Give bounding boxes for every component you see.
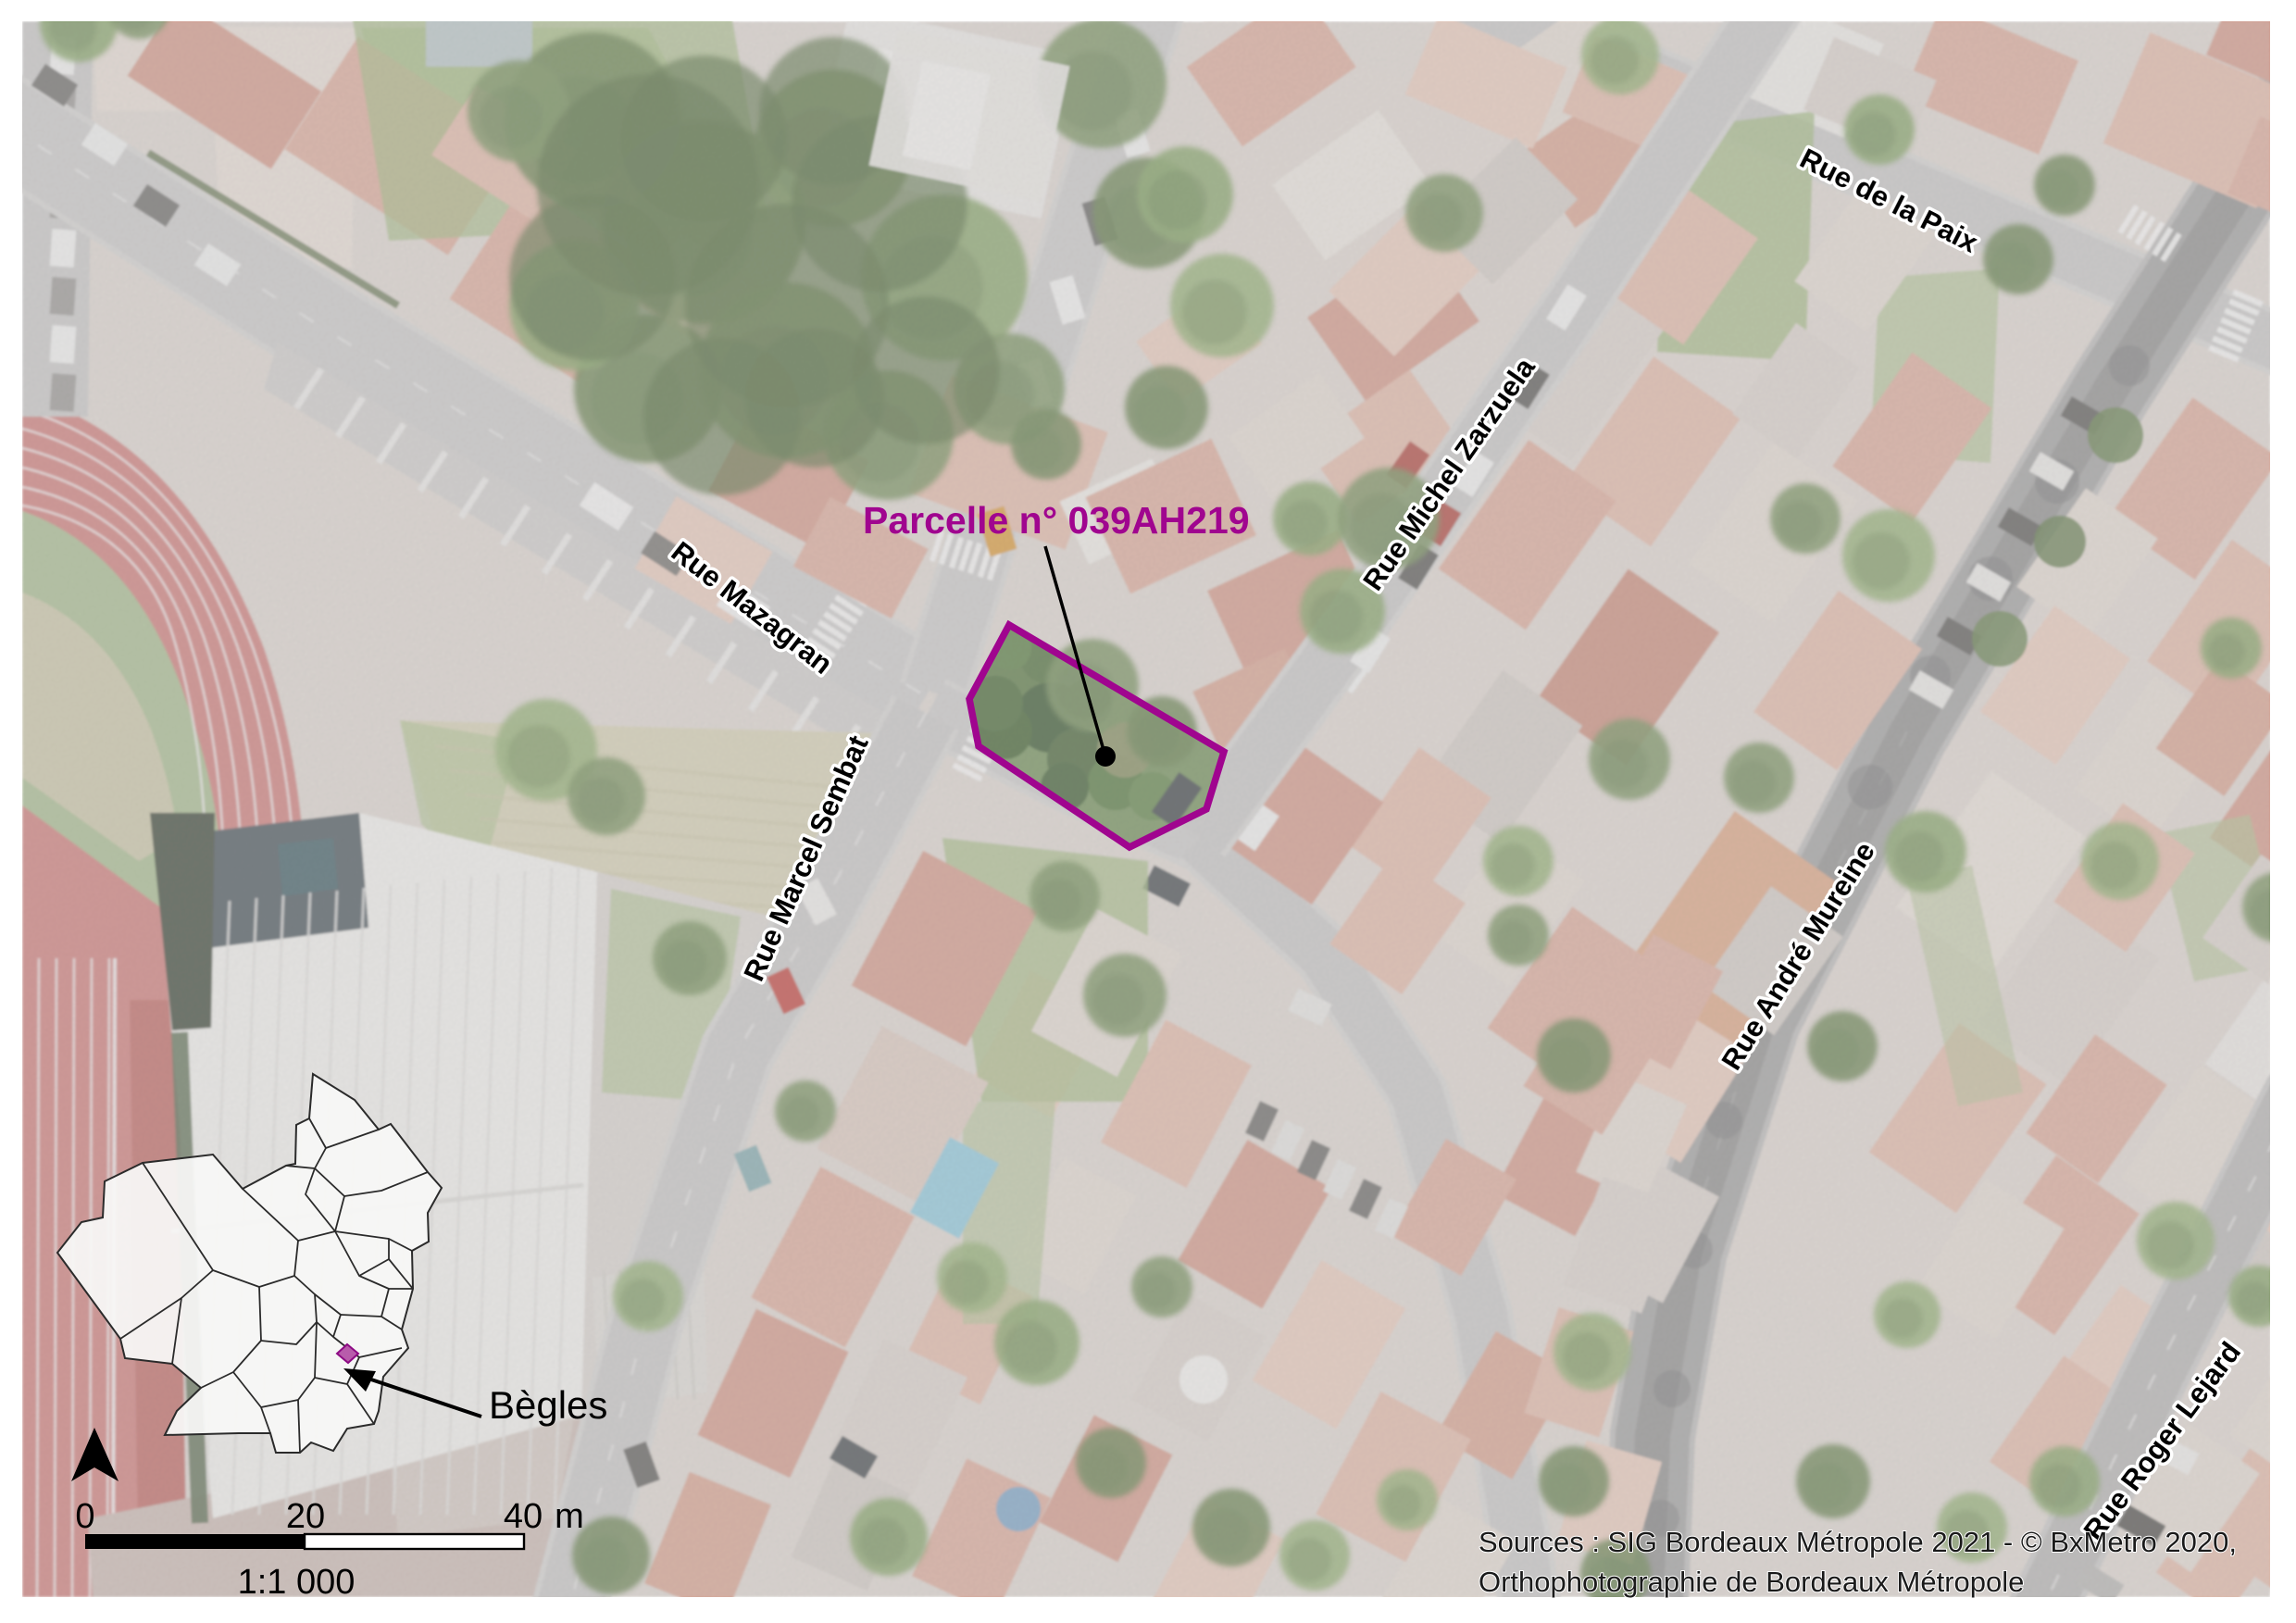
svg-text:Sources : SIG Bordeaux Métropo: Sources : SIG Bordeaux Métropole 2021 - …: [1479, 1526, 2237, 1558]
svg-text:1:1 000: 1:1 000: [238, 1563, 356, 1602]
svg-text:m: m: [555, 1497, 584, 1536]
svg-text:Orthophotographie de Bordeaux: Orthophotographie de Bordeaux Métropole: [1479, 1566, 2024, 1598]
svg-text:Bègles: Bègles: [489, 1383, 607, 1427]
svg-text:Parcelle n° 039AH219: Parcelle n° 039AH219: [863, 499, 1250, 542]
svg-text:0: 0: [75, 1497, 94, 1536]
svg-text:20: 20: [286, 1497, 325, 1536]
svg-text:40: 40: [504, 1497, 543, 1536]
